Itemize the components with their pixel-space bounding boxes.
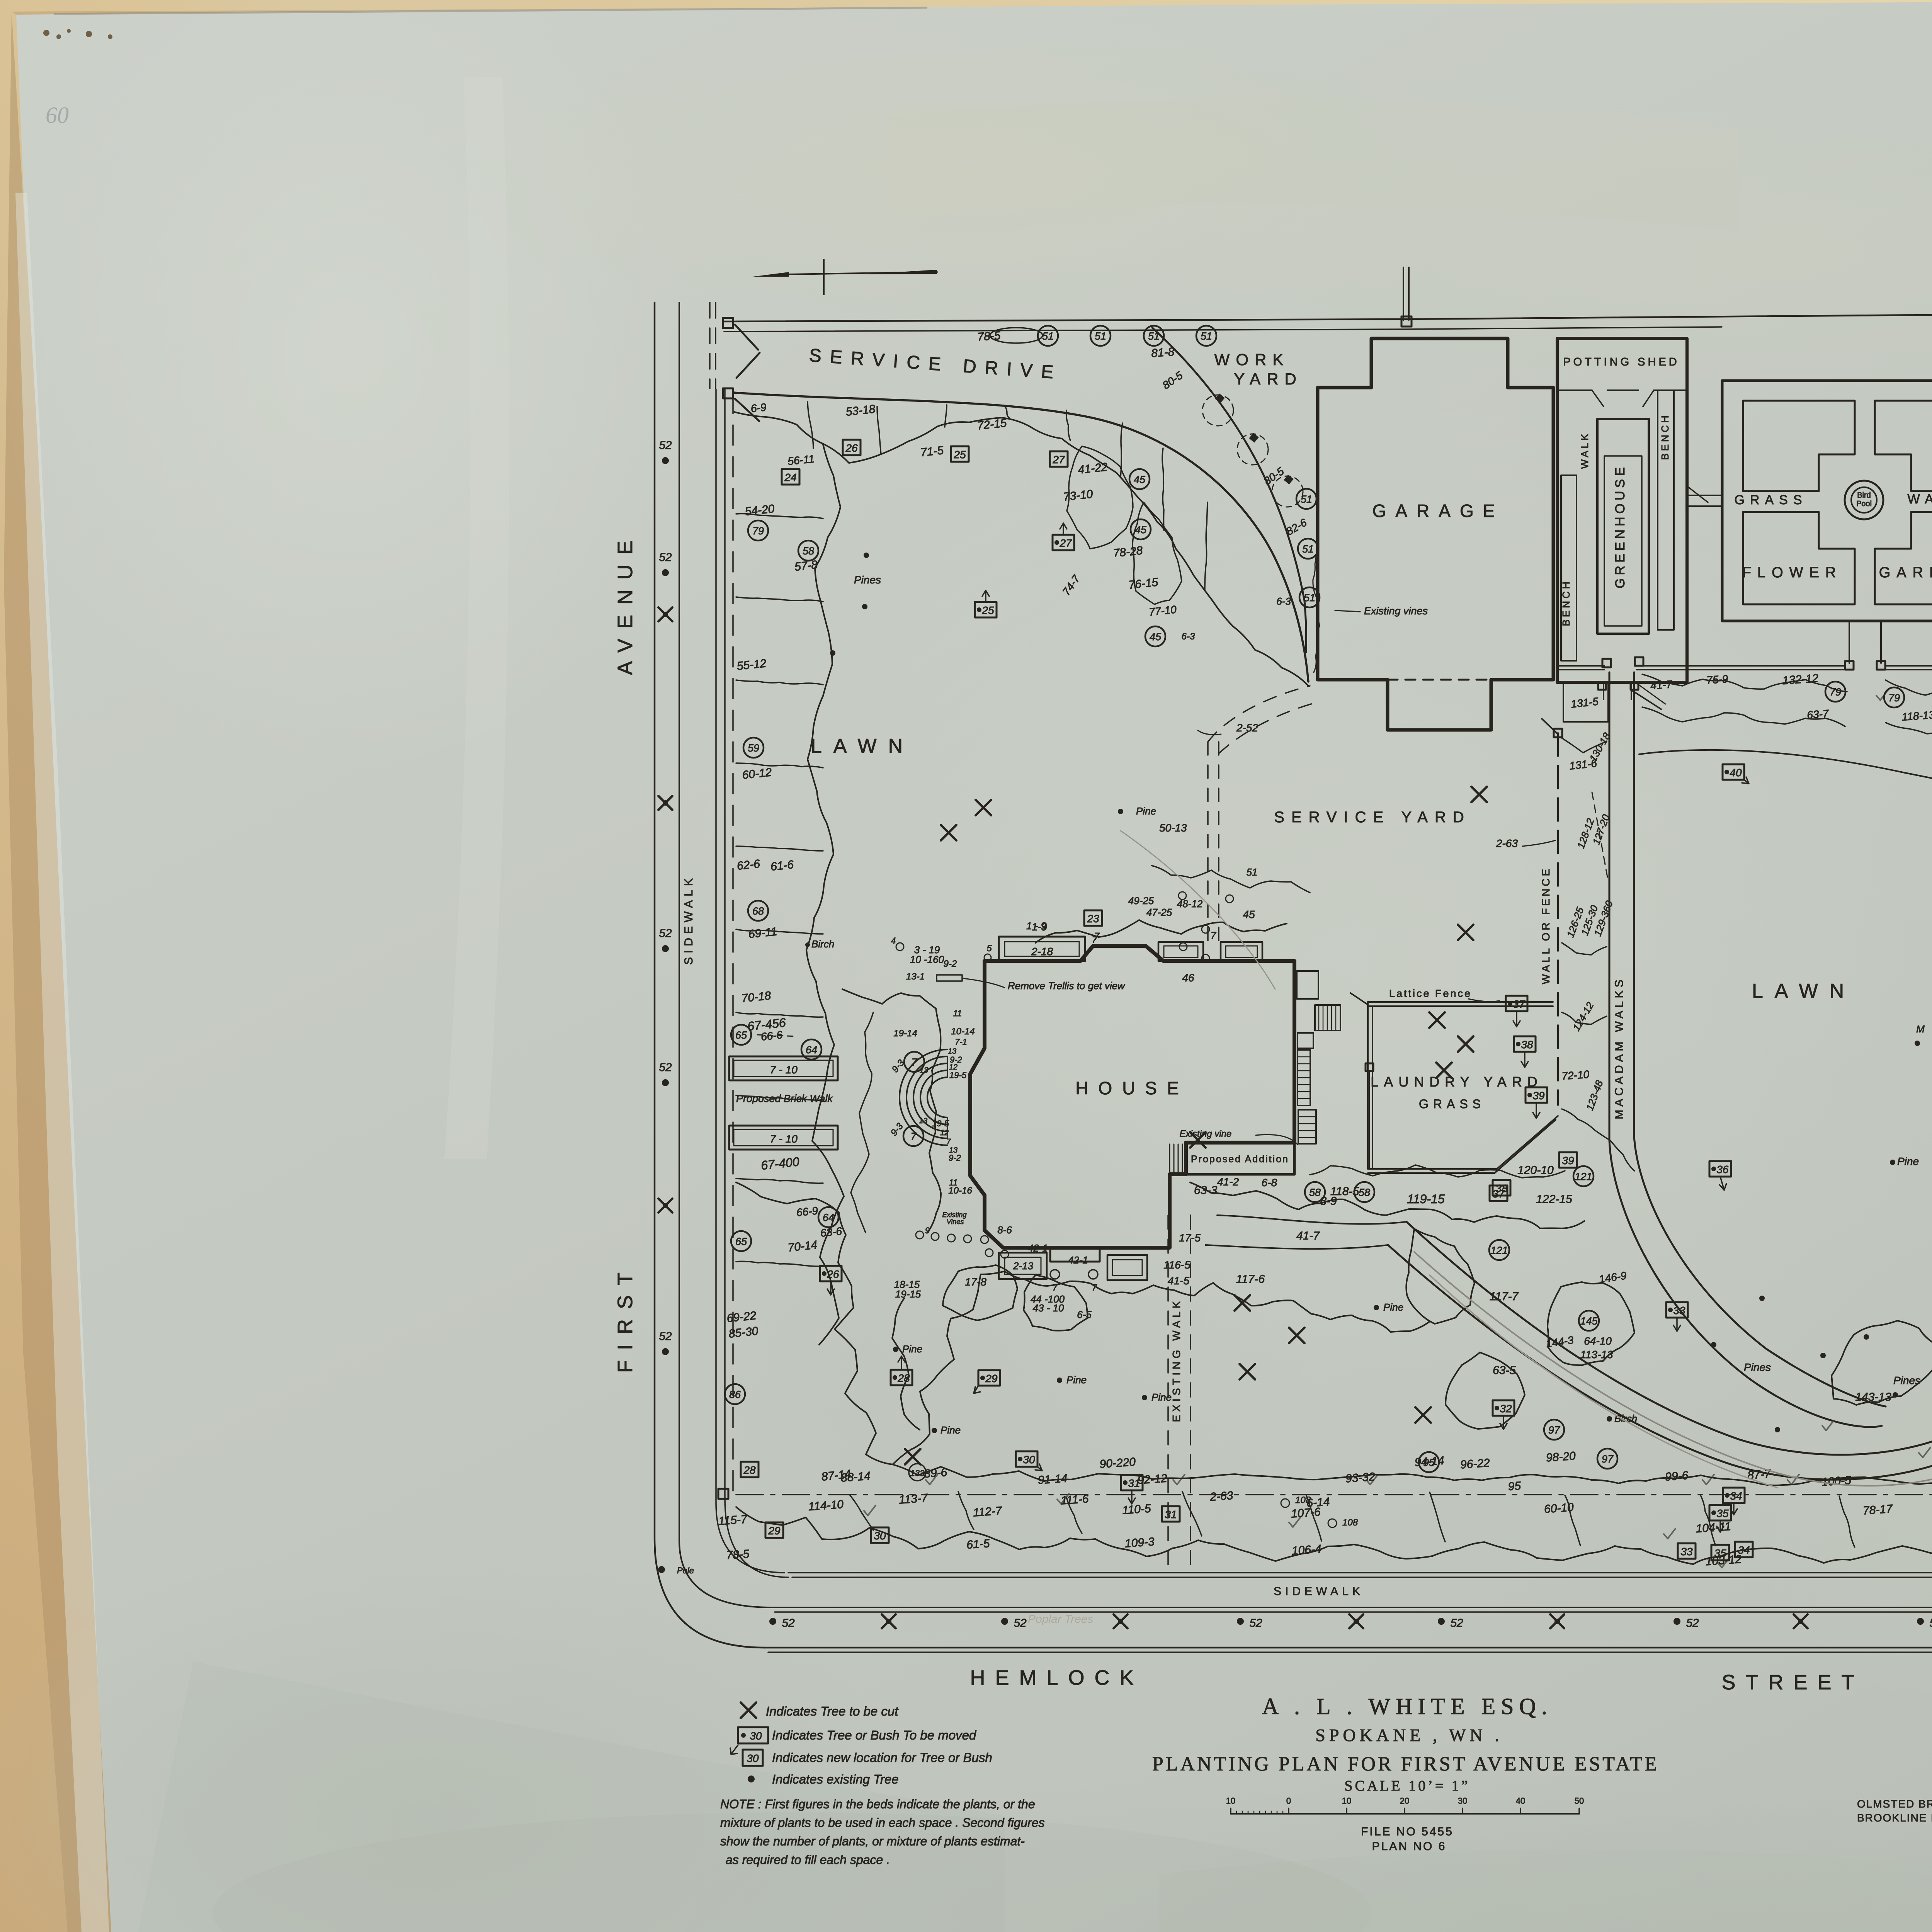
svg-text:GARDEN: GARDEN (1879, 565, 1932, 581)
svg-text:Existing vines: Existing vines (1364, 605, 1428, 617)
svg-text:7: 7 (1211, 930, 1217, 941)
svg-text:YARD: YARD (1234, 370, 1303, 388)
svg-text:7: 7 (910, 1131, 917, 1142)
svg-text:38: 38 (1495, 1182, 1508, 1194)
svg-text:7 - 10: 7 - 10 (770, 1133, 798, 1145)
svg-text:52: 52 (659, 927, 672, 940)
svg-text:65: 65 (735, 1236, 747, 1247)
svg-text:20: 20 (1400, 1796, 1409, 1806)
svg-text:91-14: 91-14 (1037, 1472, 1068, 1486)
svg-text:62-6: 62-6 (736, 857, 760, 872)
svg-text:SIDEWALK: SIDEWALK (1274, 1585, 1364, 1598)
svg-text:6-3: 6-3 (1276, 595, 1291, 607)
svg-text:51: 51 (1304, 592, 1315, 604)
svg-text:51: 51 (1148, 330, 1160, 342)
svg-text:108: 108 (1295, 1495, 1311, 1505)
svg-text:PLANTING PLAN FOR FIRST AVENUE: PLANTING PLAN FOR FIRST AVENUE ESTATE (1152, 1753, 1659, 1775)
svg-text:26: 26 (845, 442, 858, 454)
svg-text:97: 97 (1548, 1424, 1560, 1436)
svg-text:52: 52 (1014, 1617, 1027, 1629)
svg-text:27: 27 (1059, 537, 1072, 549)
svg-text:47-25: 47-25 (1146, 906, 1172, 918)
svg-text:27: 27 (1052, 454, 1065, 466)
svg-text:79: 79 (752, 525, 764, 537)
svg-text:25: 25 (953, 449, 966, 461)
svg-text:LAWN: LAWN (1752, 980, 1855, 1002)
svg-text:HOUSE: HOUSE (1075, 1078, 1189, 1098)
svg-text:41-5: 41-5 (1168, 1275, 1189, 1287)
svg-text:52: 52 (1686, 1617, 1699, 1629)
svg-text:41-7: 41-7 (1650, 678, 1673, 692)
svg-text:51: 51 (1095, 330, 1106, 342)
svg-text:51: 51 (1042, 330, 1054, 342)
svg-text:90-220: 90-220 (1099, 1456, 1136, 1471)
svg-text:A . L . WHITE ESQ.: A . L . WHITE ESQ. (1262, 1694, 1553, 1719)
svg-text:26: 26 (827, 1268, 839, 1280)
svg-text:121: 121 (1575, 1171, 1592, 1182)
svg-text:WALL OR FENCE: WALL OR FENCE (1540, 867, 1552, 985)
svg-text:40: 40 (1516, 1796, 1525, 1806)
svg-text:OLMSTED BROTHERS - LANDSCAPE: OLMSTED BROTHERS - LANDSCAPE ARCHITECTS (1857, 1798, 1932, 1810)
svg-text:68: 68 (752, 905, 764, 917)
svg-text:78-17: 78-17 (1862, 1502, 1893, 1517)
svg-text:45: 45 (1243, 908, 1255, 920)
svg-text:45: 45 (1150, 631, 1162, 643)
svg-text:23: 23 (1087, 913, 1099, 925)
svg-text:35: 35 (1714, 1547, 1726, 1559)
svg-text:97: 97 (1602, 1453, 1614, 1465)
svg-text:10 -160: 10 -160 (910, 954, 944, 965)
svg-text:117-7: 117-7 (1490, 1290, 1519, 1303)
svg-text:39: 39 (1562, 1155, 1574, 1167)
svg-text:41-7: 41-7 (1296, 1230, 1320, 1242)
svg-text:WORK: WORK (1214, 350, 1290, 369)
svg-text:GRASS: GRASS (1734, 493, 1807, 507)
svg-text:Pines: Pines (1744, 1361, 1771, 1373)
svg-text:64: 64 (806, 1044, 817, 1056)
svg-text:7 - 10: 7 - 10 (770, 1064, 798, 1076)
svg-text:110-5: 110-5 (1122, 1502, 1151, 1517)
svg-text:33: 33 (1673, 1304, 1685, 1316)
svg-text:SERVICE YARD: SERVICE YARD (1274, 809, 1471, 826)
svg-text:30: 30 (747, 1752, 759, 1764)
svg-text:52: 52 (1929, 1617, 1932, 1629)
svg-text:7: 7 (911, 1056, 917, 1068)
svg-text:78-5: 78-5 (726, 1548, 750, 1562)
svg-text:72-10: 72-10 (1561, 1068, 1590, 1082)
svg-text:10: 10 (1226, 1796, 1235, 1806)
svg-text:6-5: 6-5 (1077, 1309, 1092, 1320)
svg-text:43 - 10: 43 - 10 (1033, 1302, 1064, 1314)
svg-text:Proposed Brick Walk: Proposed Brick Walk (736, 1093, 833, 1104)
svg-text:STREET: STREET (1721, 1671, 1864, 1694)
svg-text:Indicates new location for Tre: Indicates new location for Tree or Bush (772, 1750, 992, 1765)
svg-text:SCALE 10’= 1”: SCALE 10’= 1” (1344, 1778, 1470, 1794)
svg-text:Remove Trellis to get view: Remove Trellis to get view (1008, 980, 1126, 992)
svg-text:Pine: Pine (1151, 1391, 1172, 1403)
svg-text:29: 29 (985, 1372, 997, 1384)
svg-text:30: 30 (750, 1730, 762, 1742)
svg-text:PLAN NO 6: PLAN NO 6 (1372, 1840, 1447, 1853)
svg-text:45: 45 (1135, 524, 1147, 536)
svg-text:30: 30 (1023, 1454, 1035, 1466)
svg-text:89-6: 89-6 (923, 1466, 948, 1480)
svg-text:Proposed Addition: Proposed Addition (1191, 1154, 1289, 1165)
svg-text:25: 25 (981, 604, 994, 616)
svg-text:107-6: 107-6 (1291, 1505, 1321, 1520)
svg-text:114-10: 114-10 (808, 1498, 844, 1513)
svg-text:Pine: Pine (1136, 805, 1156, 817)
svg-text:2-63: 2-63 (1496, 837, 1518, 849)
svg-text:Pine: Pine (902, 1343, 922, 1355)
svg-text:8-6: 8-6 (997, 1224, 1012, 1236)
svg-text:FILE NO 5455: FILE NO 5455 (1361, 1825, 1454, 1838)
svg-text:28: 28 (743, 1464, 756, 1476)
svg-text:52: 52 (1249, 1617, 1262, 1629)
svg-text:FIRST: FIRST (614, 1262, 637, 1373)
svg-text:59: 59 (748, 742, 759, 754)
svg-text:60-10: 60-10 (1544, 1501, 1574, 1515)
svg-text:93-32: 93-32 (1345, 1470, 1376, 1485)
svg-text:99-6: 99-6 (1665, 1469, 1689, 1483)
svg-text:117-6: 117-6 (1236, 1273, 1265, 1286)
svg-text:112-7: 112-7 (973, 1504, 1003, 1519)
svg-text:EXISTING WALK: EXISTING WALK (1170, 1298, 1182, 1422)
svg-text:95: 95 (1423, 1457, 1435, 1468)
svg-text:95: 95 (1508, 1480, 1522, 1493)
svg-text:WALK: WALK (1907, 492, 1932, 507)
svg-text:52: 52 (1450, 1617, 1463, 1629)
svg-text:19-14: 19-14 (893, 1028, 917, 1039)
svg-text:96-22: 96-22 (1460, 1456, 1490, 1471)
svg-text:11: 11 (953, 1009, 962, 1018)
svg-text:78-5: 78-5 (977, 329, 1001, 344)
svg-text:109-3: 109-3 (1124, 1535, 1155, 1550)
svg-text:HEMLOCK: HEMLOCK (970, 1666, 1143, 1689)
svg-text:45: 45 (1134, 474, 1146, 485)
svg-text:106-4: 106-4 (1291, 1543, 1322, 1557)
svg-text:61-5: 61-5 (966, 1537, 990, 1551)
svg-text:113-13: 113-13 (1580, 1349, 1613, 1361)
svg-text:71-5: 71-5 (920, 444, 944, 459)
svg-text:79: 79 (1888, 692, 1900, 704)
svg-text:6-3: 6-3 (1182, 631, 1195, 642)
svg-text:9-2: 9-2 (944, 959, 957, 969)
svg-text:52: 52 (659, 1061, 672, 1074)
svg-text:13-1: 13-1 (906, 971, 925, 982)
svg-text:35: 35 (1716, 1507, 1729, 1519)
svg-text:38: 38 (1521, 1039, 1533, 1051)
svg-text:75-9: 75-9 (1706, 673, 1728, 686)
svg-text:Poplar Trees: Poplar Trees (1028, 1613, 1094, 1626)
svg-text:31: 31 (1165, 1509, 1177, 1520)
svg-text:34: 34 (1738, 1544, 1750, 1556)
svg-text:46: 46 (1182, 972, 1194, 984)
svg-text:52: 52 (659, 551, 672, 564)
svg-text:115-7: 115-7 (718, 1513, 748, 1527)
svg-text:111-6: 111-6 (1060, 1493, 1089, 1507)
svg-text:FLOWER: FLOWER (1742, 565, 1842, 581)
svg-text:Pole: Pole (677, 1566, 694, 1575)
svg-text:7-1: 7-1 (955, 1037, 967, 1047)
svg-text:79: 79 (1830, 686, 1841, 698)
svg-text:113-7: 113-7 (898, 1492, 929, 1506)
svg-text:30: 30 (874, 1530, 886, 1542)
svg-text:9-2: 9-2 (949, 1153, 961, 1163)
svg-text:Vines: Vines (947, 1218, 964, 1226)
svg-text:50: 50 (1575, 1796, 1584, 1806)
svg-text:10-16: 10-16 (948, 1185, 972, 1196)
svg-text:30: 30 (1458, 1796, 1467, 1806)
svg-text:10: 10 (1342, 1796, 1351, 1806)
svg-text:39: 39 (1532, 1090, 1544, 1102)
svg-text:MACADAM WALKS: MACADAM WALKS (1613, 976, 1626, 1119)
svg-text:88-14: 88-14 (840, 1469, 871, 1484)
svg-text:32: 32 (1500, 1403, 1512, 1415)
svg-text:64-10: 64-10 (1584, 1335, 1612, 1347)
svg-text:BENCH: BENCH (1659, 413, 1671, 460)
svg-text:51: 51 (1247, 866, 1258, 878)
svg-text:LAUNDRY YARD: LAUNDRY YARD (1371, 1074, 1543, 1090)
svg-text:Existing: Existing (942, 1211, 966, 1219)
svg-text:SPOKANE , WN .: SPOKANE , WN . (1315, 1725, 1503, 1745)
svg-text:121: 121 (1490, 1245, 1508, 1256)
svg-text:Pines: Pines (854, 574, 881, 586)
svg-text:119-15: 119-15 (1407, 1192, 1444, 1206)
svg-text:5: 5 (986, 943, 992, 954)
svg-text:1 - 9: 1 - 9 (1026, 920, 1046, 932)
svg-text:37: 37 (1513, 998, 1526, 1010)
svg-text:49-25: 49-25 (1128, 895, 1154, 906)
svg-text:Indicates Tree to be cut: Indicates Tree to be cut (766, 1704, 899, 1718)
svg-text:Bird: Bird (1857, 491, 1871, 500)
svg-text:81-8: 81-8 (1151, 345, 1175, 360)
svg-text:Existing vine: Existing vine (1180, 1129, 1232, 1139)
svg-text:2-18: 2-18 (1031, 946, 1053, 957)
svg-text:52: 52 (659, 1330, 672, 1343)
svg-text:10-14: 10-14 (951, 1026, 975, 1037)
svg-text:7: 7 (946, 1138, 951, 1146)
svg-text:120-10: 120-10 (1517, 1164, 1554, 1177)
svg-text:145: 145 (1580, 1315, 1598, 1327)
svg-text:as required to fill each spac: as required to fill each space . (726, 1853, 890, 1867)
svg-text:2-13: 2-13 (1013, 1260, 1034, 1272)
svg-text:POTTING SHED: POTTING SHED (1563, 356, 1680, 368)
svg-text:100-5: 100-5 (1821, 1474, 1852, 1488)
svg-text:GARAGE: GARAGE (1372, 501, 1504, 521)
svg-text:29: 29 (768, 1525, 780, 1537)
svg-text:51: 51 (1302, 543, 1314, 555)
svg-text:133: 133 (910, 1468, 925, 1478)
svg-text:13: 13 (948, 1047, 956, 1056)
svg-text:104-11: 104-11 (1696, 1520, 1731, 1535)
svg-text:Birch: Birch (1614, 1413, 1637, 1424)
svg-text:12: 12 (940, 1129, 949, 1137)
svg-text:50-13: 50-13 (1159, 822, 1187, 834)
svg-text:98-20: 98-20 (1546, 1449, 1576, 1464)
svg-text:2-63: 2-63 (1209, 1489, 1234, 1503)
svg-text:52: 52 (659, 439, 672, 452)
svg-text:BROOKLINE MASS FEB. 14 , 1912: BROOKLINE MASS FEB. 14 , 1912 (1857, 1812, 1932, 1824)
svg-text:63-5: 63-5 (1493, 1364, 1516, 1377)
svg-text:36: 36 (1716, 1163, 1729, 1175)
svg-text:66-9: 66-9 (796, 1204, 819, 1219)
svg-text:65: 65 (735, 1029, 747, 1041)
svg-text:17-5: 17-5 (1179, 1232, 1201, 1244)
svg-text:63-7: 63-7 (1806, 707, 1829, 721)
svg-text:108: 108 (1342, 1517, 1358, 1528)
svg-text:51: 51 (1201, 330, 1212, 342)
svg-text:Indicates existing Tree: Indicates existing Tree (772, 1772, 899, 1786)
svg-text:6-9: 6-9 (750, 401, 767, 415)
svg-text:52: 52 (782, 1617, 795, 1629)
svg-text:42-1: 42-1 (1028, 1242, 1048, 1254)
svg-text:58: 58 (1359, 1187, 1370, 1198)
svg-text:LAWN: LAWN (811, 735, 914, 757)
svg-text:116-5: 116-5 (1163, 1259, 1190, 1271)
svg-text:132-12: 132-12 (1782, 672, 1819, 687)
svg-text:6-8: 6-8 (1262, 1177, 1277, 1189)
svg-text:Pool: Pool (1856, 500, 1872, 508)
svg-text:143-13: 143-13 (1855, 1391, 1891, 1403)
svg-text:M: M (1916, 1023, 1925, 1035)
svg-text:33: 33 (1680, 1546, 1693, 1558)
svg-text:4: 4 (891, 936, 896, 946)
svg-text:Birch: Birch (811, 938, 834, 950)
svg-text:41-2: 41-2 (1217, 1176, 1239, 1188)
svg-text:SIDEWALK: SIDEWALK (682, 874, 695, 965)
svg-text:24: 24 (784, 471, 796, 483)
svg-text:GRASS: GRASS (1419, 1097, 1485, 1111)
svg-text:WALK: WALK (1579, 432, 1590, 469)
svg-text:Pine: Pine (1066, 1374, 1087, 1386)
svg-text:86: 86 (729, 1389, 741, 1400)
svg-text:122-15: 122-15 (1536, 1193, 1572, 1206)
svg-text:64: 64 (823, 1212, 834, 1223)
svg-text:58: 58 (1309, 1187, 1321, 1198)
svg-text:13: 13 (919, 1117, 927, 1125)
svg-text:Pine: Pine (1897, 1155, 1919, 1167)
svg-text:NOTE : First figures in the: NOTE : First figures in the beds indicat… (720, 1797, 1035, 1811)
svg-text:42-1: 42-1 (1068, 1254, 1088, 1266)
svg-text:show the number of plants, or: show the number of plants, or mixture of… (720, 1834, 1025, 1848)
svg-text:Lattice Fence: Lattice Fence (1389, 988, 1472, 999)
svg-text:61-6: 61-6 (770, 858, 794, 873)
svg-text:AVENUE: AVENUE (614, 531, 637, 675)
svg-text:17-8: 17-8 (965, 1276, 986, 1288)
svg-text:Pine: Pine (940, 1424, 961, 1436)
svg-text:34: 34 (1730, 1490, 1742, 1502)
svg-text:GREENHOUSE: GREENHOUSE (1613, 464, 1628, 588)
svg-text:19-5: 19-5 (949, 1070, 967, 1080)
svg-text:31: 31 (1128, 1477, 1140, 1489)
svg-text:2-52: 2-52 (1236, 722, 1258, 734)
svg-text:Pine: Pine (1383, 1301, 1403, 1313)
svg-text:58: 58 (803, 545, 814, 557)
svg-text:19-15: 19-15 (895, 1288, 921, 1300)
svg-text:Indicates Tree or Bush To be m: Indicates Tree or Bush To be moved (772, 1728, 977, 1742)
svg-text:BENCH: BENCH (1560, 579, 1572, 626)
svg-text:60: 60 (46, 102, 69, 128)
svg-text:0: 0 (1286, 1796, 1291, 1806)
svg-text:118-13: 118-13 (1901, 709, 1932, 723)
svg-text:mixture of plants to be used: mixture of plants to be used in each spa… (720, 1816, 1045, 1830)
svg-text:40: 40 (1730, 767, 1742, 779)
